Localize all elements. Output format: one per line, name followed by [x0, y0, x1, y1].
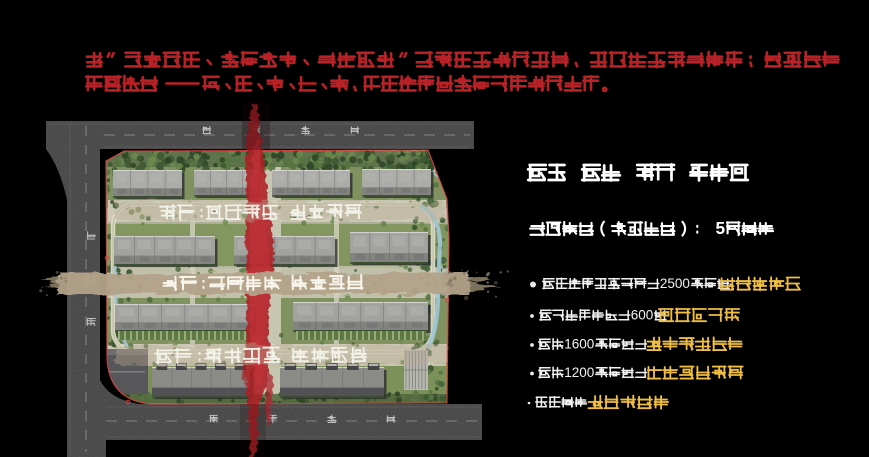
svg-text:5: 5 [716, 218, 726, 238]
svg-text:600: 600 [631, 307, 654, 322]
svg-text:1600: 1600 [564, 336, 594, 351]
svg-text:1200: 1200 [564, 365, 594, 380]
svg-text:2500: 2500 [660, 276, 690, 291]
